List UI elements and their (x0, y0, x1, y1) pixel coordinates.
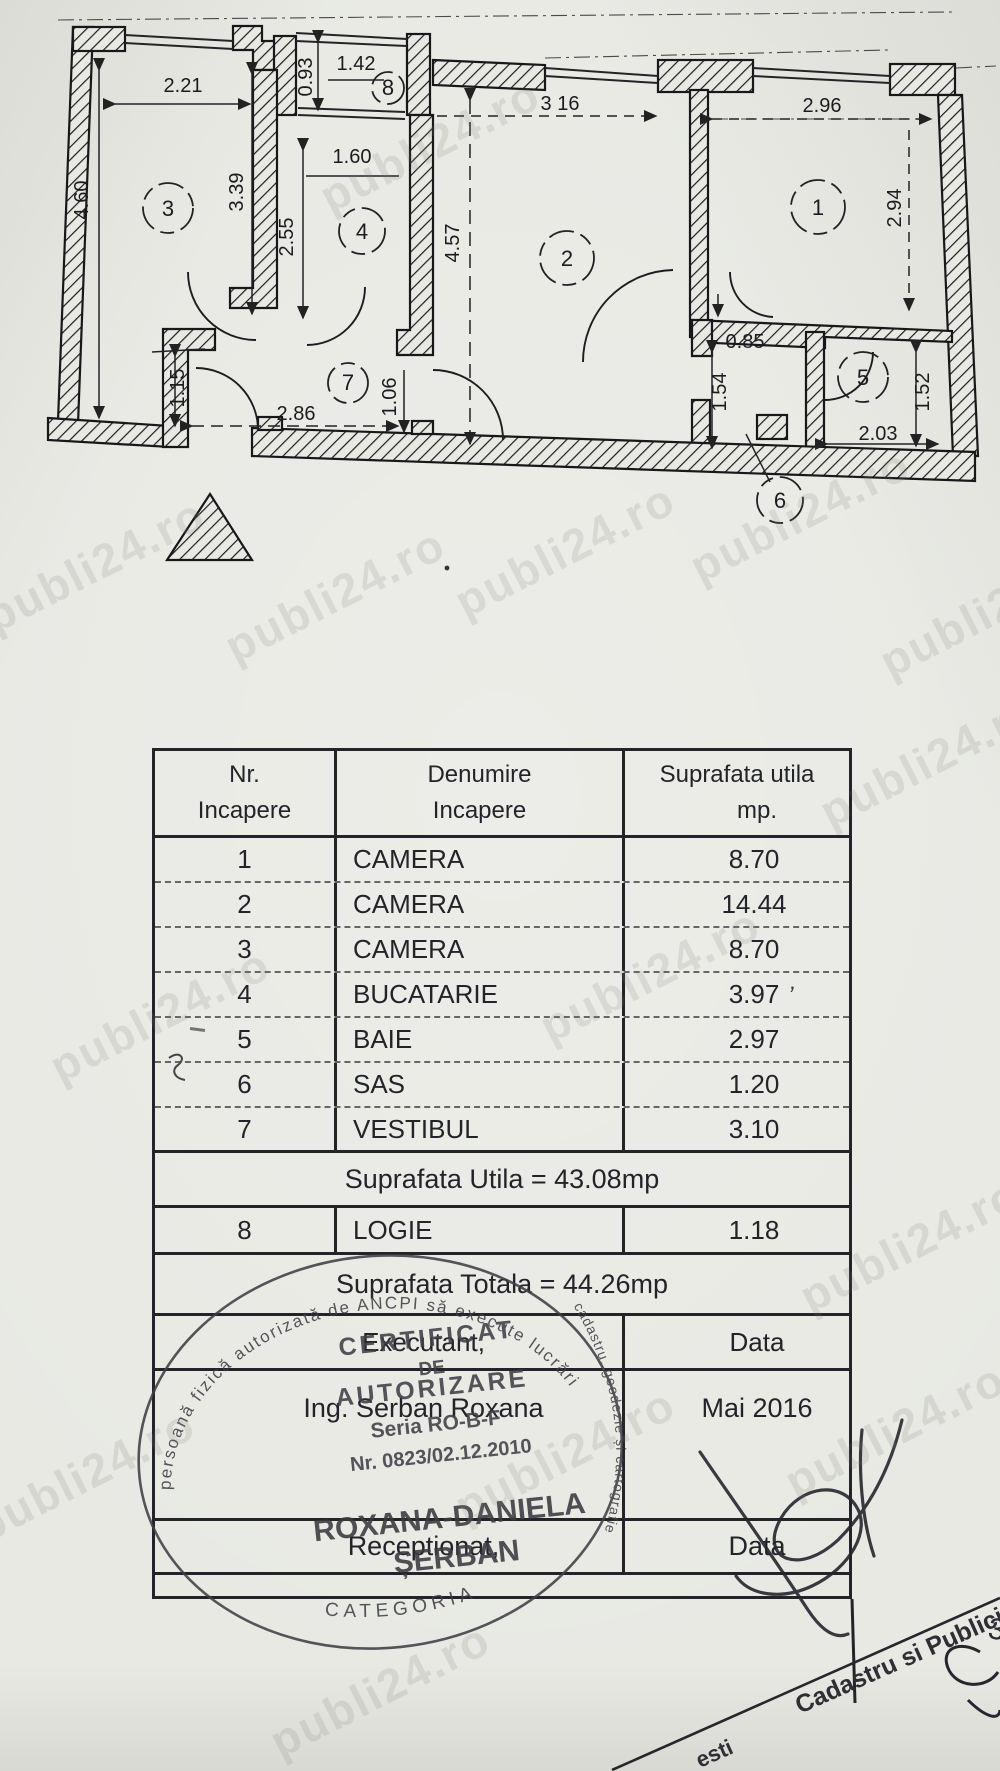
door-room4 (307, 287, 365, 345)
room-number-7: 7 (342, 370, 354, 395)
room-number-4: 4 (356, 219, 368, 244)
room-number-1: 1 (812, 195, 824, 220)
logie-row: 8 LOGIE 1.18 (155, 1208, 849, 1255)
scanned-cadastral-document: { "watermark": { "text": "publi24.ro" },… (0, 0, 1000, 1771)
data-label: Data (625, 1521, 849, 1572)
room-nr: 5 (155, 1018, 337, 1061)
floor-plan: 2.21 0.93 1.42 3 16 2.96 1.60 3.39 2.55 … (0, 0, 1000, 640)
receptionat-row: Receptionat, Data (155, 1521, 849, 1575)
wall-block-b (233, 26, 277, 70)
room-number-6: 6 (774, 488, 786, 513)
room-area: 14.44 (625, 883, 849, 926)
wall-top-room2 (433, 60, 545, 90)
room-nr: 7 (155, 1108, 337, 1150)
room-nr: 8 (155, 1208, 337, 1252)
room-area: 3.10 (625, 1108, 849, 1150)
stamp-box-edge (612, 1598, 1000, 1770)
room-number-5: 5 (857, 365, 869, 390)
wall-block-c (658, 60, 753, 92)
dim-label: 2.96 (803, 95, 842, 117)
data-label: Data (625, 1316, 849, 1368)
executant-name: Ing. Serban Roxana (155, 1371, 625, 1518)
room-area: 2.97 (625, 1018, 849, 1061)
dim-label: 1.52 (912, 373, 934, 412)
executant-label: Executant, (155, 1316, 625, 1368)
area-table: Nr. Incapere Denumire Incapere Suprafata… (152, 748, 852, 1599)
dim-label: 2.55 (276, 218, 298, 257)
room-nr: 3 (155, 928, 337, 971)
header-denumire: Denumire Incapere (337, 751, 625, 835)
dimension-labels: 2.21 0.93 1.42 3 16 2.96 1.60 3.39 2.55 … (71, 53, 934, 445)
suprafata-utila-row: Suprafata Utila = 43.08mp (155, 1153, 849, 1208)
wall-block-a (73, 27, 125, 51)
table-row: 6 SAS 1.20 (155, 1063, 849, 1108)
suprafata-totala-text: Suprafata Totala = 44.26mp (336, 1269, 668, 1300)
bottom-signature (946, 1646, 1000, 1716)
suprafata-utila-text: Suprafata Utila = 43.08mp (345, 1164, 659, 1195)
door-room1-sas (730, 272, 773, 317)
table-header: Nr. Incapere Denumire Incapere Suprafata… (155, 751, 849, 838)
dim-label: 1.60 (333, 146, 372, 168)
header-text: Incapere (433, 797, 526, 825)
header-text: Nr. (229, 761, 260, 789)
wall-sas-block (757, 415, 787, 439)
header-text: Suprafata utila (660, 761, 815, 789)
room-name: SAS (337, 1063, 625, 1106)
dim-label: 0.93 (295, 58, 317, 97)
header-text: Denumire (427, 761, 531, 789)
dim-label: 1.42 (337, 53, 376, 75)
wall-logie-right (407, 34, 430, 115)
room-name: CAMERA (337, 883, 625, 926)
room-name: LOGIE (337, 1208, 625, 1252)
page-number: 3 (986, 1612, 1000, 1647)
room-number-3: 3 (162, 196, 174, 221)
wall-kitchen-hall (397, 115, 433, 355)
wall-right (938, 95, 978, 456)
dim-label: 0.85 (726, 331, 765, 353)
door-entrance (196, 368, 258, 430)
room-area: 8.70 (625, 838, 849, 881)
dim-label: 3 16 (541, 93, 580, 115)
dim-label: 4.57 (442, 224, 464, 263)
room-nr: 2 (155, 883, 337, 926)
header-text: Incapere (198, 797, 291, 825)
dim-label: 2.21 (164, 75, 203, 97)
room-nr: 6 (155, 1063, 337, 1106)
executant-header-row: Executant, Data (155, 1316, 849, 1371)
header-suprafata: Suprafata utila mp. (625, 751, 849, 835)
dim-label: 2.86 (277, 403, 316, 425)
executant-date: Mai 2016 (625, 1371, 849, 1518)
dim-label: 2.03 (859, 423, 898, 445)
dim-label: 2.94 (884, 189, 906, 228)
room-name: CAMERA (337, 838, 625, 881)
dim-label: 1.06 (379, 378, 401, 417)
header-nr: Nr. Incapere (155, 751, 337, 835)
dim-label: 1.15 (167, 369, 189, 408)
table-row: 7 VESTIBUL 3.10 (155, 1108, 849, 1153)
table-row: 5 BAIE 2.97 (155, 1018, 849, 1063)
wall-left (58, 27, 93, 424)
header-text: mp. (737, 797, 777, 825)
bottom-stamp-text-2: esti (692, 1734, 737, 1771)
room-area: 1.20 (625, 1063, 849, 1106)
table-row: 4 BUCATARIE 3.97 (155, 973, 849, 1018)
room-number-8: 8 (382, 75, 394, 100)
door-room2-inner (583, 270, 673, 362)
wall-sas-baie (806, 332, 824, 458)
room-name: BAIE (337, 1018, 625, 1061)
suprafata-totala-row: Suprafata Totala = 44.26mp (155, 1255, 849, 1316)
room-name: BUCATARIE (337, 973, 625, 1016)
empty-strip (155, 1575, 849, 1599)
table-row: 2 CAMERA 14.44 (155, 883, 849, 928)
room-area: 3.97 (625, 973, 849, 1016)
dim-label: 1.54 (709, 373, 731, 412)
room-name: CAMERA (337, 928, 625, 971)
table-border-extension (852, 1599, 855, 1703)
room-number-2: 2 (561, 246, 573, 271)
table-row: 3 CAMERA 8.70 (155, 928, 849, 973)
wall-doorframe-2 (412, 421, 433, 434)
receptionat-label: Receptionat, (155, 1521, 625, 1572)
room-nr: 1 (155, 838, 337, 881)
dim-label: 3.39 (226, 173, 248, 212)
room-nr: 4 (155, 973, 337, 1016)
section-triangle (167, 494, 252, 560)
wall-bottom-left (48, 418, 170, 447)
dim-label: 4.60 (71, 181, 93, 220)
room-name: VESTIBUL (337, 1108, 625, 1150)
wall-room2-room1 (690, 90, 708, 337)
watermark: publi24.ro (261, 1612, 499, 1769)
table-row: 1 CAMERA 8.70 (155, 838, 849, 883)
wall-block-d (890, 64, 955, 95)
wall-stub-sas (692, 320, 712, 356)
door-vestibule-room2 (433, 370, 503, 440)
executant-row: Ing. Serban Roxana Mai 2016 (155, 1371, 849, 1521)
room-area: 8.70 (625, 928, 849, 971)
room-area: 1.18 (625, 1208, 849, 1252)
ink-dot (445, 566, 450, 571)
